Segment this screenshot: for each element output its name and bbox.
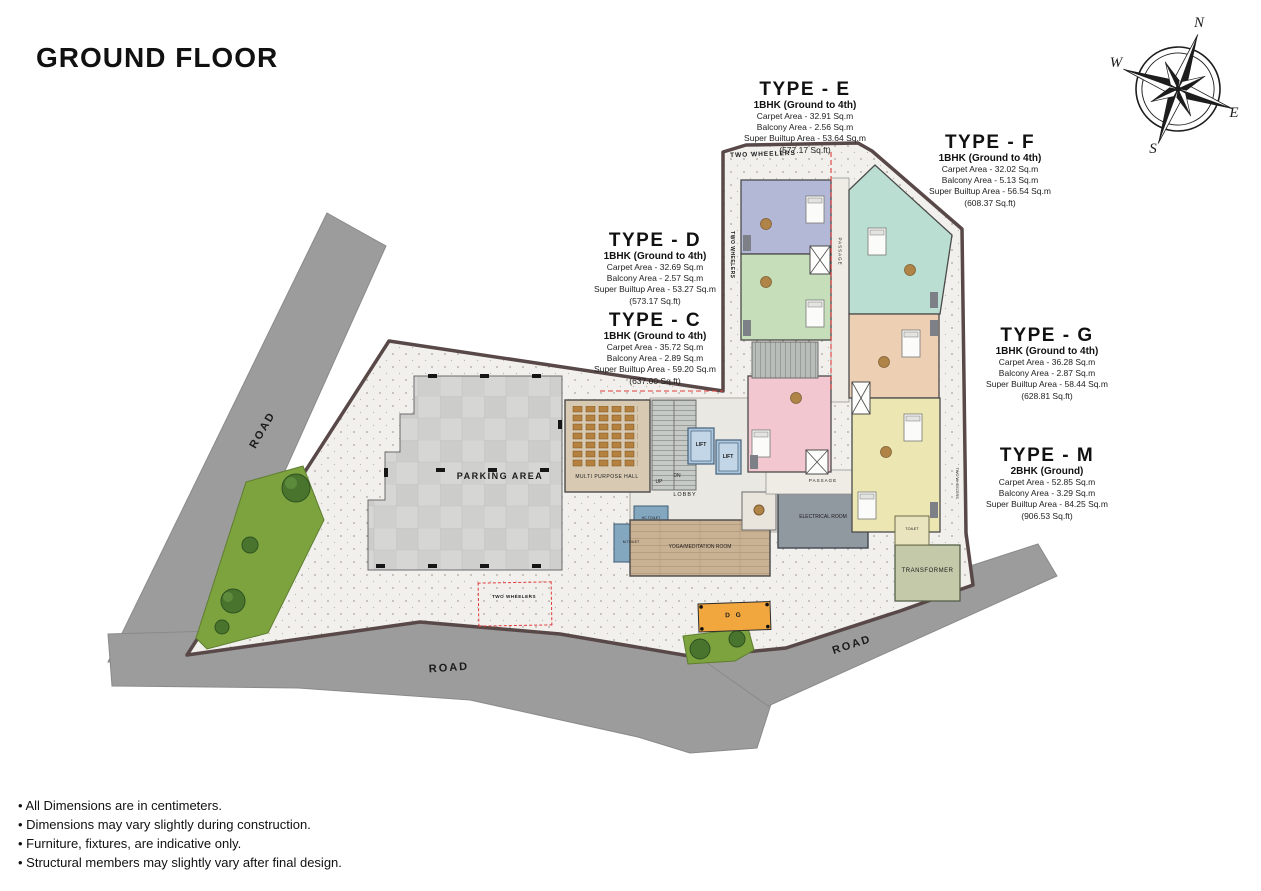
type-e-block: TYPE - E 1BHK (Ground to 4th) Carpet Are… [710, 80, 900, 156]
two-wheelers-vertical-label: TWO WHEELERS [728, 225, 734, 285]
lift-label-1: LIFT [690, 443, 712, 449]
parking-area-label: PARKING AREA [440, 471, 560, 481]
passage-label-vertical: PASSAGE [837, 222, 842, 282]
type-f-builtup: Super Builtup Area - 56.54 Sq.m [895, 186, 1085, 197]
type-m-name: TYPE - M [952, 446, 1142, 465]
type-g-block: TYPE - G 1BHK (Ground to 4th) Carpet Are… [952, 326, 1142, 402]
type-c-block: TYPE - C 1BHK (Ground to 4th) Carpet Are… [560, 311, 750, 387]
type-e-name: TYPE - E [710, 80, 900, 99]
type-g-sqft: (628.81 Sq.ft) [952, 391, 1142, 402]
type-c-balcony: Balcony Area - 2.89 Sq.m [560, 353, 750, 364]
type-d-builtup: Super Builtup Area - 53.27 Sq.m [560, 284, 750, 295]
note-3: • Furniture, fixtures, are indicative on… [18, 834, 342, 853]
lobby-label: LOBBY [655, 492, 715, 498]
type-m-subtitle: 2BHK (Ground) [952, 466, 1142, 477]
type-f-sqft: (608.37 Sq.ft) [895, 198, 1085, 209]
type-d-sqft: (573.17 Sq.ft) [560, 296, 750, 307]
type-c-subtitle: 1BHK (Ground to 4th) [560, 331, 750, 342]
two-wheelers-dashed-zone [478, 581, 553, 626]
note-1: • All Dimensions are in centimeters. [18, 796, 342, 815]
yoga-room-label: YOGA/MEDITATION ROOM [650, 545, 750, 551]
two-wheelers-box-label: TWO WHEELERS [491, 594, 537, 599]
compass-rose: N W E S [1104, 15, 1253, 164]
lift-label-2: LIFT [717, 455, 739, 461]
compass-n: N [1193, 15, 1205, 31]
type-g-name: TYPE - G [952, 326, 1142, 345]
type-m-carpet: Carpet Area - 52.85 Sq.m [952, 477, 1142, 488]
note-2: • Dimensions may vary slightly during co… [18, 815, 342, 834]
passage-corridor-vertical [831, 178, 849, 402]
type-m-block: TYPE - M 2BHK (Ground) Carpet Area - 52.… [952, 446, 1142, 522]
electrical-room-label: ELECTRICAL ROOM [793, 515, 853, 521]
office-room [742, 492, 776, 530]
type-g-subtitle: 1BHK (Ground to 4th) [952, 346, 1142, 357]
type-e-subtitle: 1BHK (Ground to 4th) [710, 100, 900, 111]
compass-e: E [1228, 105, 1238, 121]
m-toilet-label: M.TOILET [614, 540, 648, 544]
type-g-builtup: Super Builtup Area - 58.44 Sq.m [952, 379, 1142, 390]
dn-label: DN [668, 474, 686, 480]
type-d-block: TYPE - D 1BHK (Ground to 4th) Carpet Are… [560, 231, 750, 307]
multipurpose-hall-label: MULTI PURPOSE HALL [567, 475, 647, 481]
page-title: GROUND FLOOR [36, 42, 278, 74]
type-m-balcony: Balcony Area - 3.29 Sq.m [952, 488, 1142, 499]
type-f-block: TYPE - F 1BHK (Ground to 4th) Carpet Are… [895, 133, 1085, 209]
note-4: • Structural members may slightly vary a… [18, 853, 342, 872]
compass-star [1104, 15, 1253, 164]
type-c-name: TYPE - C [560, 311, 750, 330]
two-wheelers-right-label: TWO WHEELERS [955, 453, 959, 513]
type-e-balcony: Balcony Area - 2.56 Sq.m [710, 122, 900, 133]
type-f-subtitle: 1BHK (Ground to 4th) [895, 153, 1085, 164]
toilet-label: TOILET [896, 527, 928, 531]
type-c-builtup: Super Builtup Area - 59.20 Sq.m [560, 364, 750, 375]
type-f-balcony: Balcony Area - 5.13 Sq.m [895, 175, 1085, 186]
tree-icon [729, 631, 745, 647]
ground-floor-plan-page: N W E S GROUND FLOOR TYPE - E 1BHK (Grou… [0, 0, 1261, 891]
footnotes: • All Dimensions are in centimeters. • D… [18, 796, 342, 872]
type-c-sqft: (637.00 Sq.ft) [560, 376, 750, 387]
type-m-sqft: (906.53 Sq.ft) [952, 511, 1142, 522]
compass-s: S [1149, 141, 1157, 157]
type-d-name: TYPE - D [560, 231, 750, 250]
wing-staircase [752, 342, 818, 378]
type-g-balcony: Balcony Area - 2.87 Sq.m [952, 368, 1142, 379]
hc-toilet-label: HC TOILET [633, 516, 669, 520]
compass-w: W [1110, 55, 1124, 71]
type-e-builtup: Super Builtup Area - 53.64 Sq.m [710, 133, 900, 144]
type-d-carpet: Carpet Area - 32.69 Sq.m [560, 262, 750, 273]
tree-icon [690, 639, 710, 659]
type-d-balcony: Balcony Area - 2.57 Sq.m [560, 273, 750, 284]
type-m-builtup: Super Builtup Area - 84.25 Sq.m [952, 499, 1142, 510]
transformer-label: TRANSFORMER [895, 568, 960, 575]
passage-label-horizontal: PASSAGE [793, 478, 853, 483]
hall-seating [572, 406, 638, 468]
type-e-carpet: Carpet Area - 32.91 Sq.m [710, 111, 900, 122]
type-c-carpet: Carpet Area - 35.72 Sq.m [560, 342, 750, 353]
type-d-subtitle: 1BHK (Ground to 4th) [560, 251, 750, 262]
type-f-carpet: Carpet Area - 32.02 Sq.m [895, 164, 1085, 175]
up-label: UP [650, 480, 668, 486]
type-f-name: TYPE - F [895, 133, 1085, 152]
type-g-carpet: Carpet Area - 36.28 Sq.m [952, 357, 1142, 368]
